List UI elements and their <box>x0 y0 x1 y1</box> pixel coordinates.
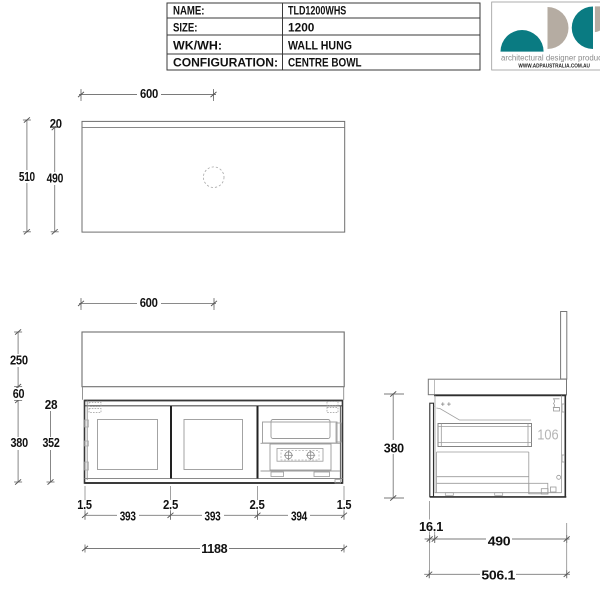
svg-text:WK/WH:: WK/WH: <box>173 39 222 53</box>
svg-text:28: 28 <box>45 398 58 412</box>
svg-text:600: 600 <box>140 296 158 310</box>
svg-text:16.1: 16.1 <box>419 520 443 534</box>
svg-text:250: 250 <box>10 354 28 368</box>
svg-text:393: 393 <box>205 510 221 524</box>
svg-text:352: 352 <box>43 436 60 450</box>
svg-text:CENTRE BOWL: CENTRE BOWL <box>288 56 362 70</box>
svg-text:WALL HUNG: WALL HUNG <box>288 39 352 53</box>
svg-text:60: 60 <box>13 387 25 401</box>
svg-text:380: 380 <box>384 442 404 456</box>
svg-text:20: 20 <box>50 117 62 131</box>
svg-text:600: 600 <box>140 87 158 101</box>
svg-text:393: 393 <box>120 510 136 524</box>
svg-text:1.5: 1.5 <box>77 498 92 512</box>
svg-text:2.5: 2.5 <box>163 498 178 512</box>
svg-text:TLD1200WHS: TLD1200WHS <box>288 4 346 18</box>
svg-text:1200: 1200 <box>288 21 315 35</box>
svg-text:380: 380 <box>11 436 29 450</box>
svg-text:2.5: 2.5 <box>250 498 265 512</box>
svg-text:506.1: 506.1 <box>481 568 515 582</box>
svg-text:WWW.ADPAUSTRALIA.COM.AU: WWW.ADPAUSTRALIA.COM.AU <box>518 63 590 69</box>
svg-text:CONFIGURATION:: CONFIGURATION: <box>173 56 278 70</box>
svg-text:106: 106 <box>537 427 558 443</box>
svg-text:1188: 1188 <box>201 542 227 556</box>
svg-text:1.5: 1.5 <box>337 498 352 512</box>
svg-text:NAME:: NAME: <box>173 4 205 18</box>
svg-text:SIZE:: SIZE: <box>173 21 198 35</box>
svg-text:490: 490 <box>47 172 64 186</box>
svg-text:architectural designer produc: architectural designer produc <box>501 53 600 62</box>
svg-text:490: 490 <box>488 534 511 548</box>
svg-text:394: 394 <box>291 510 307 524</box>
svg-text:510: 510 <box>19 170 35 184</box>
